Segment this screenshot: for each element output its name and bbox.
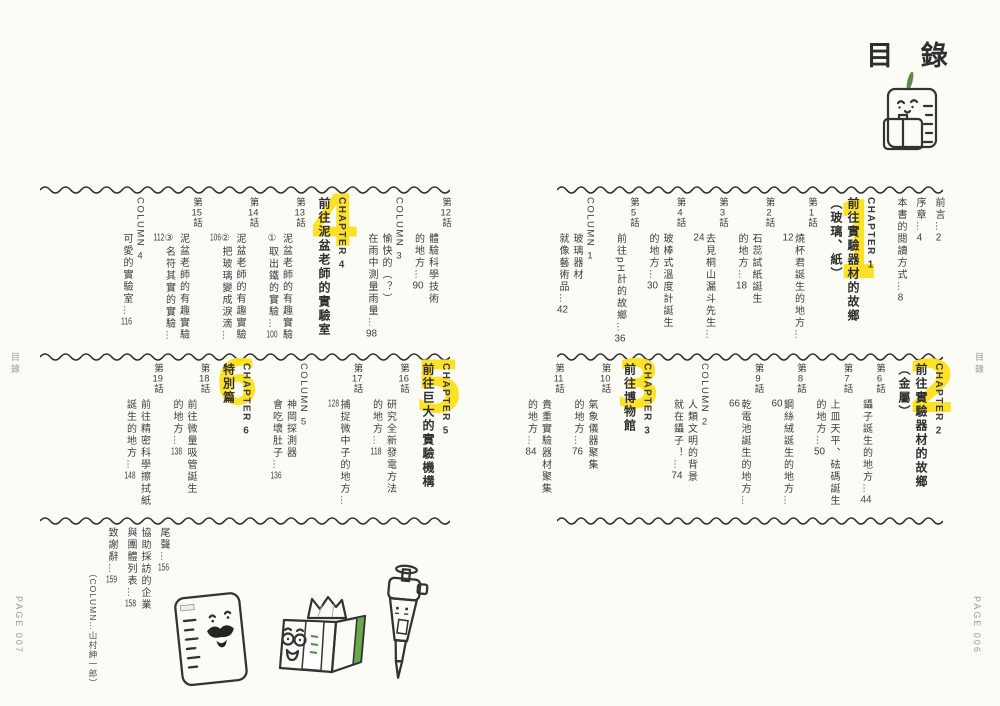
page-title: 目 錄 [858,34,966,73]
episode-title: 玻棒式溫度計誕生 [661,197,671,347]
episode-label: 第9話 [753,363,763,511]
column-title: 可愛的實驗室…116 [121,197,131,347]
episode-entry: 第10話 氣象儀器聚集 的地方…76 [572,363,610,511]
episode-entry: 第17話 捕捉微中子的地方…128 [328,363,362,511]
ending-item: 協助採訪的企業 與團體列表…158 [125,527,149,703]
episode-entry: 第6話 鑷子誕生的地方…44 [861,363,885,511]
episode-title: 的地方…90 [413,197,423,347]
episode-title: 泥盆老師的有趣實驗 [234,197,244,347]
episode-title: 泥盆老師的有趣實驗 [281,197,291,347]
column-entry: COLUMN 1 玻璃器材 就像藝術品…42 [557,197,595,347]
episode-title: 石蕊試紙誕生 [750,197,760,347]
episode-title: 體驗科學技術 [427,197,437,347]
column-title: 就在鑷子！…74 [672,363,682,511]
episode-entry: 第3話 去見桐山漏斗先生…24 [694,197,728,347]
chapter-label: CHAPTER 5 [440,363,450,511]
episode-label: 第18話 [199,363,209,511]
episode-title: 前往精密科學擦拭紙 [139,363,149,511]
episode-label: 第15話 [192,197,202,347]
episode-label: 第1話 [807,197,817,347]
chapter-label: CHAPTER 3 [642,363,652,511]
episode-entry: 第16話 研究全新發電方法 的地方…118 [371,363,409,511]
column-title: 神岡探測器 [285,363,295,511]
episode-entry: 第8話 鋼絲絨誕生的地方…60 [772,363,806,511]
micropipette-icon [356,564,444,686]
chapter-title: 特別篇 [223,363,235,511]
section-chapter5-6: 5 CHAPTER 5 前往巨大的實驗機構 第16話 研究全新發電方法 的地方…… [40,363,450,511]
episode-label: 第16話 [399,363,409,511]
episode-label: 第17話 [352,363,362,511]
episode-entry: 第2話 石蕊試紙誕生 的地方…18 [736,197,774,347]
column-entry: COLUMN 5 神岡探測器 會吃壞肚子…136 [271,363,309,511]
column-entry: COLUMN 4 可愛的實驗室…116 [121,197,145,347]
episode-title: 貴重實驗器材聚集 [540,363,550,511]
episode-title: ①取出鐵的實驗…100 [267,197,277,347]
episode-label: 第5話 [629,197,639,347]
episode-entry: 第18話 前往微量吸管誕生 的地方…138 [171,363,209,511]
episode-label: 第4話 [675,197,685,347]
episode-title: 泥盆老師的有趣實驗 [178,197,188,347]
episode-entry: 第5話 前往pH計的故鄉…36 [615,197,639,347]
episode-title: 捕捉微中子的地方…128 [328,363,348,511]
chapter-subtitle: （金屬） [898,363,910,511]
beaker-character-icon [158,580,266,698]
section-chapter2-3: 2 CHAPTER 2 前往實驗器材的故鄉 （金屬） 第6話 鑷子誕生的地方…4… [557,363,943,511]
episode-title: ③名符其實的實驗…112 [154,197,174,347]
chapter-label: CHAPTER 4 [336,197,346,347]
episode-title: 的地方…84 [526,363,536,511]
chapter-title: 前往泥盆老師的實驗室 [318,197,330,347]
chapter-title: 前往實驗器材的故鄉 [847,197,859,347]
episode-title: 上皿天平、砝碼誕生 [828,363,838,511]
column-title: 會吃壞肚子…136 [271,363,281,511]
episode-label: 第14話 [248,197,258,347]
section-chapter4: 第12話 體驗科學技術 的地方…90 COLUMN 3 愉快的（？） 在雨中測量… [40,197,450,347]
episode-entry: 第4話 玻棒式溫度計誕生 的地方…30 [647,197,685,347]
column-title: 就像藝術品…42 [557,197,567,347]
page-number-left: PAGE 007 [14,596,24,654]
column-title: 玻璃器材 [571,197,581,347]
chapter6-heading: 6 CHAPTER 6 特別篇 [223,363,251,511]
section-ending: 尾聲…156 協助採訪的企業 與團體列表…158 致謝辭…159 （COLUMN… [40,527,168,703]
episode-label: 第6話 [875,363,885,511]
episode-entry: 第1話 燒杯君誕生的地方…12 [783,197,817,347]
chapter-subtitle: （玻璃、紙） [830,197,842,347]
episode-title: 研究全新發電方法 [385,363,395,511]
front-matter-item: 本書的閱讀方式…8 [895,197,905,347]
column-label: COLUMN 3 [394,197,404,347]
column-title: 在雨中測量雨量…98 [366,197,376,347]
episode-entry: 第9話 乾電池誕生的地方…66 [729,363,763,511]
episode-title: 的地方…30 [647,197,657,347]
column-label: COLUMN 4 [135,197,145,347]
toc-line: 本書的閱讀方式…8 [895,197,905,347]
chapter-label: CHAPTER 2 [933,363,943,511]
chapter5-heading: 5 CHAPTER 5 前往巨大的實驗機構 [422,363,450,511]
column-label: COLUMN 5 [299,363,309,511]
episode-entry: 第11話 貴重實驗器材聚集 的地方…84 [526,363,564,511]
wavy-divider [40,182,450,194]
episode-title: 的地方…50 [814,363,824,511]
toc-line: 協助採訪的企業 [139,527,149,703]
chapter2-heading: 2 CHAPTER 2 前往實驗器材的故鄉 （金屬） [898,363,943,511]
episode-title: 的地方…118 [371,363,381,511]
chapter-label: CHAPTER 1 [865,197,875,347]
episode-label: 第13話 [295,197,305,347]
episode-label: 第3話 [718,197,728,347]
chapter4-heading: 4 CHAPTER 4 前往泥盆老師的實驗室 [318,197,346,347]
episode-label: 第12話 [441,197,451,347]
page-number-right: PAGE 006 [972,596,982,654]
chapter1-heading: 1 CHAPTER 1 前往實驗器材的故鄉 （玻璃、紙） [830,197,875,347]
front-matter-item: 序章…4 [914,197,924,347]
wavy-divider [40,513,450,525]
section-chapter1: 前言…2 序章…4 本書的閱讀方式…8 1 CHAPTER 1 前往實驗器材的故… [557,197,943,347]
column-title: 人類文明的背景 [686,363,696,511]
column-title: 愉快的（？） [380,197,390,347]
chapter-title: 前往實驗器材的故鄉 [915,363,927,511]
episode-entry: 第19話 前往精密科學擦拭紙 誕生的地方…148 [125,363,163,511]
toc-line: 與團體列表…158 [125,527,135,703]
column-entry: COLUMN 3 愉快的（？） 在雨中測量雨量…98 [366,197,404,347]
episode-title: 氣象儀器聚集 [586,363,596,511]
front-matter-item: 前言…2 [933,197,943,347]
episode-title: 去見桐山漏斗先生…24 [694,197,714,347]
toc-line: 前言…2 [933,197,943,347]
episode-entry: 第12話 體驗科學技術 的地方…90 [413,197,451,347]
episode-title: 燒杯君誕生的地方…12 [783,197,803,347]
beaker-with-briefcase-icon [874,72,950,156]
ending-item: 致謝辭…159 [106,527,116,703]
episode-label: 第11話 [554,363,564,511]
toc-line: 致謝辭…159 [106,527,116,703]
wavy-divider [557,513,943,525]
right-margin-toc-label: 目錄 [973,352,986,376]
episode-label: 第10話 [600,363,610,511]
episode-entry: 第13話 泥盆老師的有趣實驗 ①取出鐵的實驗…100 [267,197,305,347]
left-margin-toc-label: 目錄 [9,352,22,376]
episode-title: 的地方…76 [572,363,582,511]
episode-entry: 第14話 泥盆老師的有趣實驗 ②把玻璃變成淚滴…106 [210,197,258,347]
episode-title: 鑷子誕生的地方…44 [861,363,871,511]
column-label: COLUMN 2 [700,363,710,511]
chapter3-heading: 3 CHAPTER 3 前往博物館 [624,363,652,511]
episode-entry: 第7話 上皿天平、砝碼誕生 的地方…50 [814,363,852,511]
episode-title: 前往微量吸管誕生 [185,363,195,511]
column-label: COLUMN 1 [585,197,595,347]
episode-title: 誕生的地方…148 [125,363,135,511]
episode-title: 乾電池誕生的地方…66 [729,363,749,511]
episode-label: 第2話 [764,197,774,347]
toc-line: 序章…4 [914,197,924,347]
column-entry: COLUMN 2 人類文明的背景 就在鑷子！…74 [672,363,710,511]
chapter-title: 前往巨大的實驗機構 [422,363,434,511]
episode-title: 鋼絲絨誕生的地方…60 [772,363,792,511]
toc-spread: 目 錄 前言…2 序章…4 本書的閱讀方式…8 1 CHAPTER 1 前往實驗… [0,0,1000,706]
episode-entry: 第15話 泥盆老師的有趣實驗 ③名符其實的實驗…112 [154,197,202,347]
episode-title: ②把玻璃變成淚滴…106 [210,197,230,347]
wavy-divider [557,182,943,194]
episode-label: 第7話 [842,363,852,511]
chapter-title: 前往博物館 [624,363,636,511]
episode-title: 的地方…138 [171,363,181,511]
chapter-label: CHAPTER 6 [241,363,251,511]
episode-label: 第19話 [153,363,163,511]
episode-label: 第8話 [796,363,806,511]
column-credit: （COLUMN…山村紳一郎） [89,527,98,703]
episode-title: 前往pH計的故鄉…36 [615,197,625,347]
episode-title: 的地方…18 [736,197,746,347]
